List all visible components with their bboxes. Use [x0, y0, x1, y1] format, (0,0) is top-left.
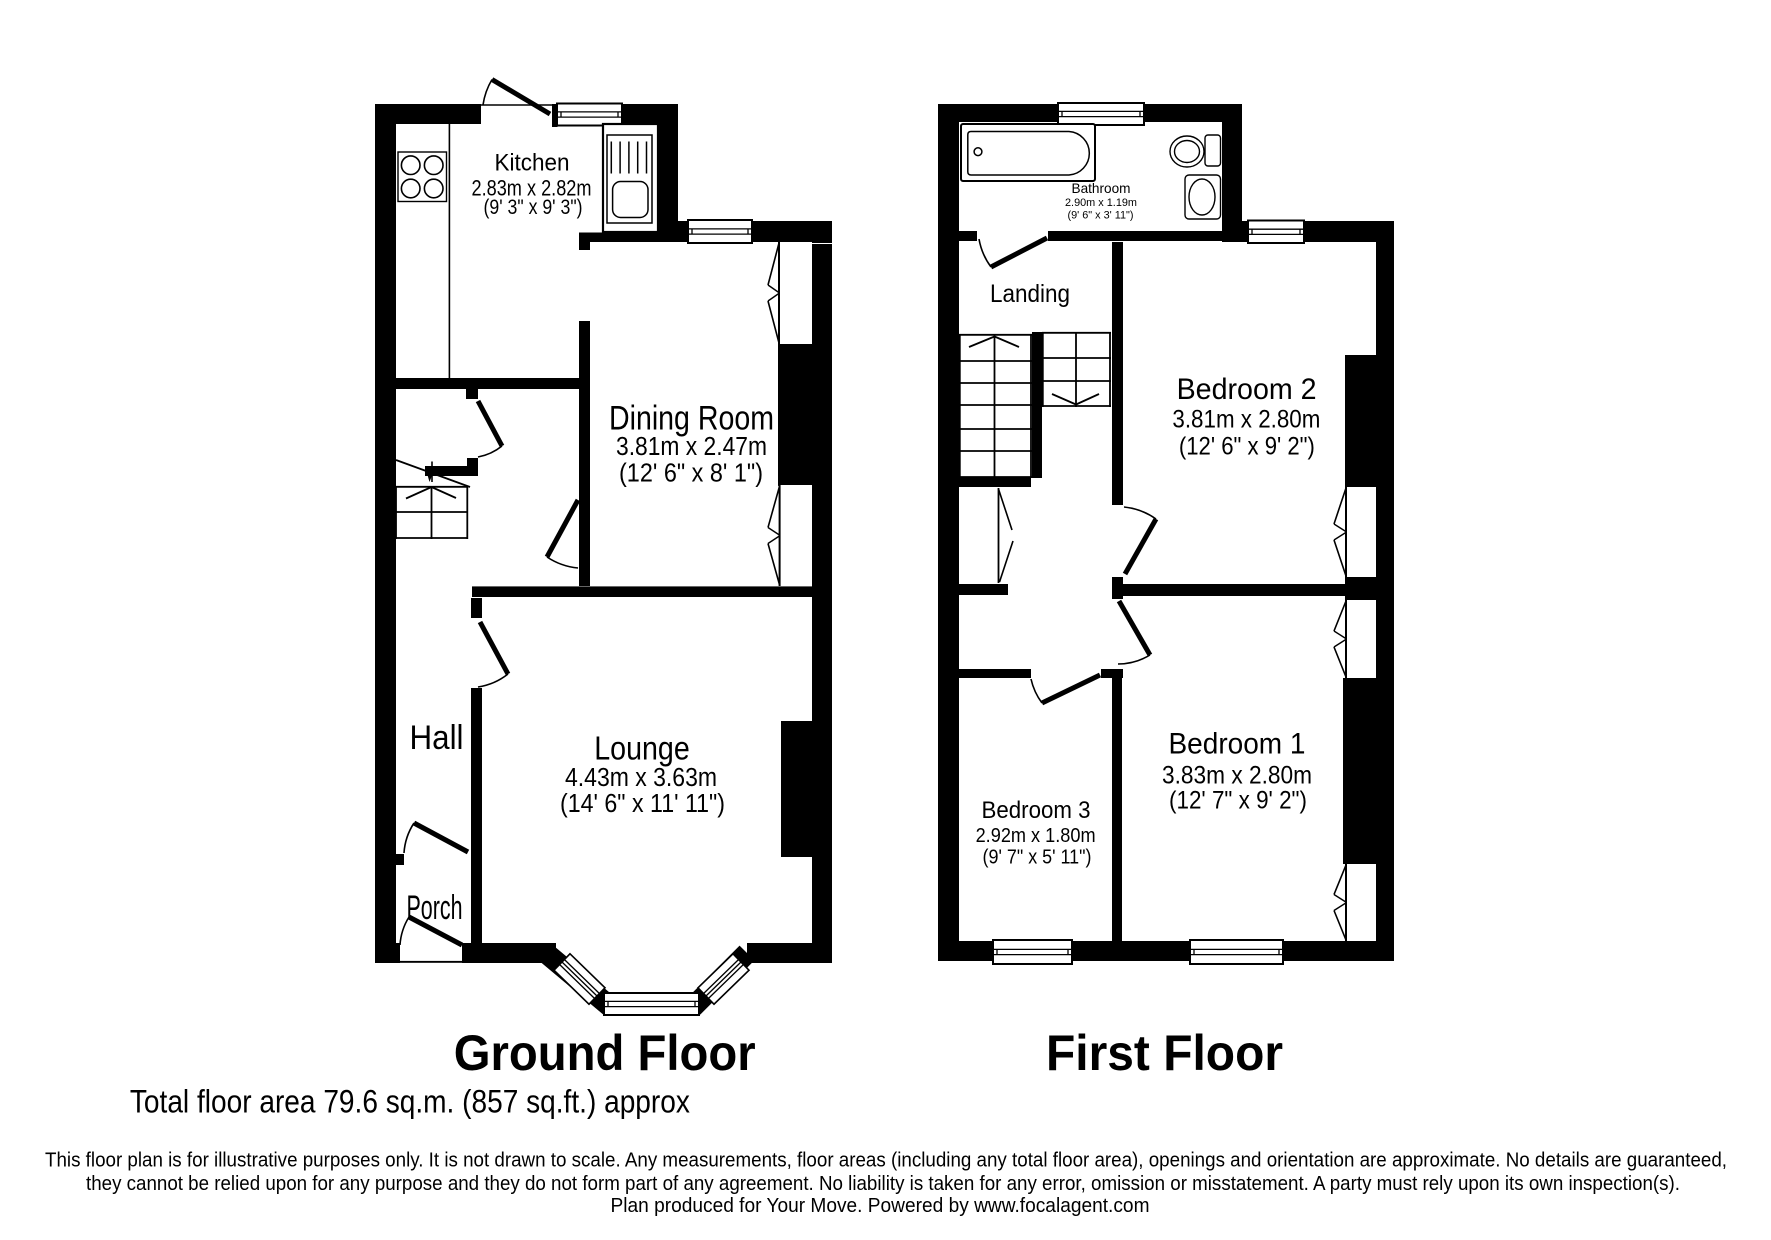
svg-text:(12' 6" x 9' 2"): (12' 6" x 9' 2") — [1179, 432, 1315, 460]
svg-text:Bedroom 3: Bedroom 3 — [982, 797, 1091, 824]
svg-text:Total floor area 79.6 sq.m. (8: Total floor area 79.6 sq.m. (857 sq.ft.)… — [130, 1084, 690, 1120]
svg-text:(9' 6" x 3' 11"): (9' 6" x 3' 11") — [1068, 210, 1134, 222]
svg-text:Plan produced for Your Move. P: Plan produced for Your Move. Powered by … — [611, 1195, 1150, 1217]
svg-text:3.81m x 2.80m: 3.81m x 2.80m — [1172, 405, 1320, 433]
svg-text:(9' 7" x 5' 11"): (9' 7" x 5' 11") — [983, 847, 1092, 869]
svg-text:4.43m x 3.63m: 4.43m x 3.63m — [565, 764, 717, 792]
svg-text:(12' 6" x 8' 1"): (12' 6" x 8' 1") — [619, 460, 763, 488]
svg-text:Bedroom 2: Bedroom 2 — [1177, 373, 1317, 406]
svg-text:they cannot be relied upon for: they cannot be relied upon for any purpo… — [86, 1173, 1680, 1195]
svg-text:Bedroom 1: Bedroom 1 — [1169, 728, 1306, 761]
svg-text:Lounge: Lounge — [594, 730, 690, 767]
svg-text:(9' 3" x 9' 3"): (9' 3" x 9' 3") — [484, 196, 583, 219]
svg-text:Bathroom: Bathroom — [1072, 180, 1131, 196]
svg-text:3.83m x 2.80m: 3.83m x 2.80m — [1162, 762, 1312, 790]
svg-text:Kitchen: Kitchen — [495, 150, 570, 177]
svg-text:2.92m x 1.80m: 2.92m x 1.80m — [976, 825, 1096, 847]
svg-text:First Floor: First Floor — [1046, 1025, 1283, 1081]
svg-text:3.81m x 2.47m: 3.81m x 2.47m — [616, 433, 767, 461]
svg-text:Hall: Hall — [410, 719, 464, 757]
svg-text:Ground Floor: Ground Floor — [454, 1025, 756, 1081]
svg-text:This floor plan is for illustr: This floor plan is for illustrative purp… — [45, 1150, 1727, 1172]
svg-text:(14' 6" x 11' 11"): (14' 6" x 11' 11") — [560, 790, 725, 818]
svg-text:Dining Room: Dining Room — [609, 400, 774, 438]
svg-text:2.90m x 1.19m: 2.90m x 1.19m — [1065, 197, 1137, 209]
svg-text:(12' 7" x 9' 2"): (12' 7" x 9' 2") — [1169, 786, 1307, 814]
svg-text:Porch: Porch — [407, 889, 463, 927]
svg-text:Landing: Landing — [990, 280, 1070, 308]
